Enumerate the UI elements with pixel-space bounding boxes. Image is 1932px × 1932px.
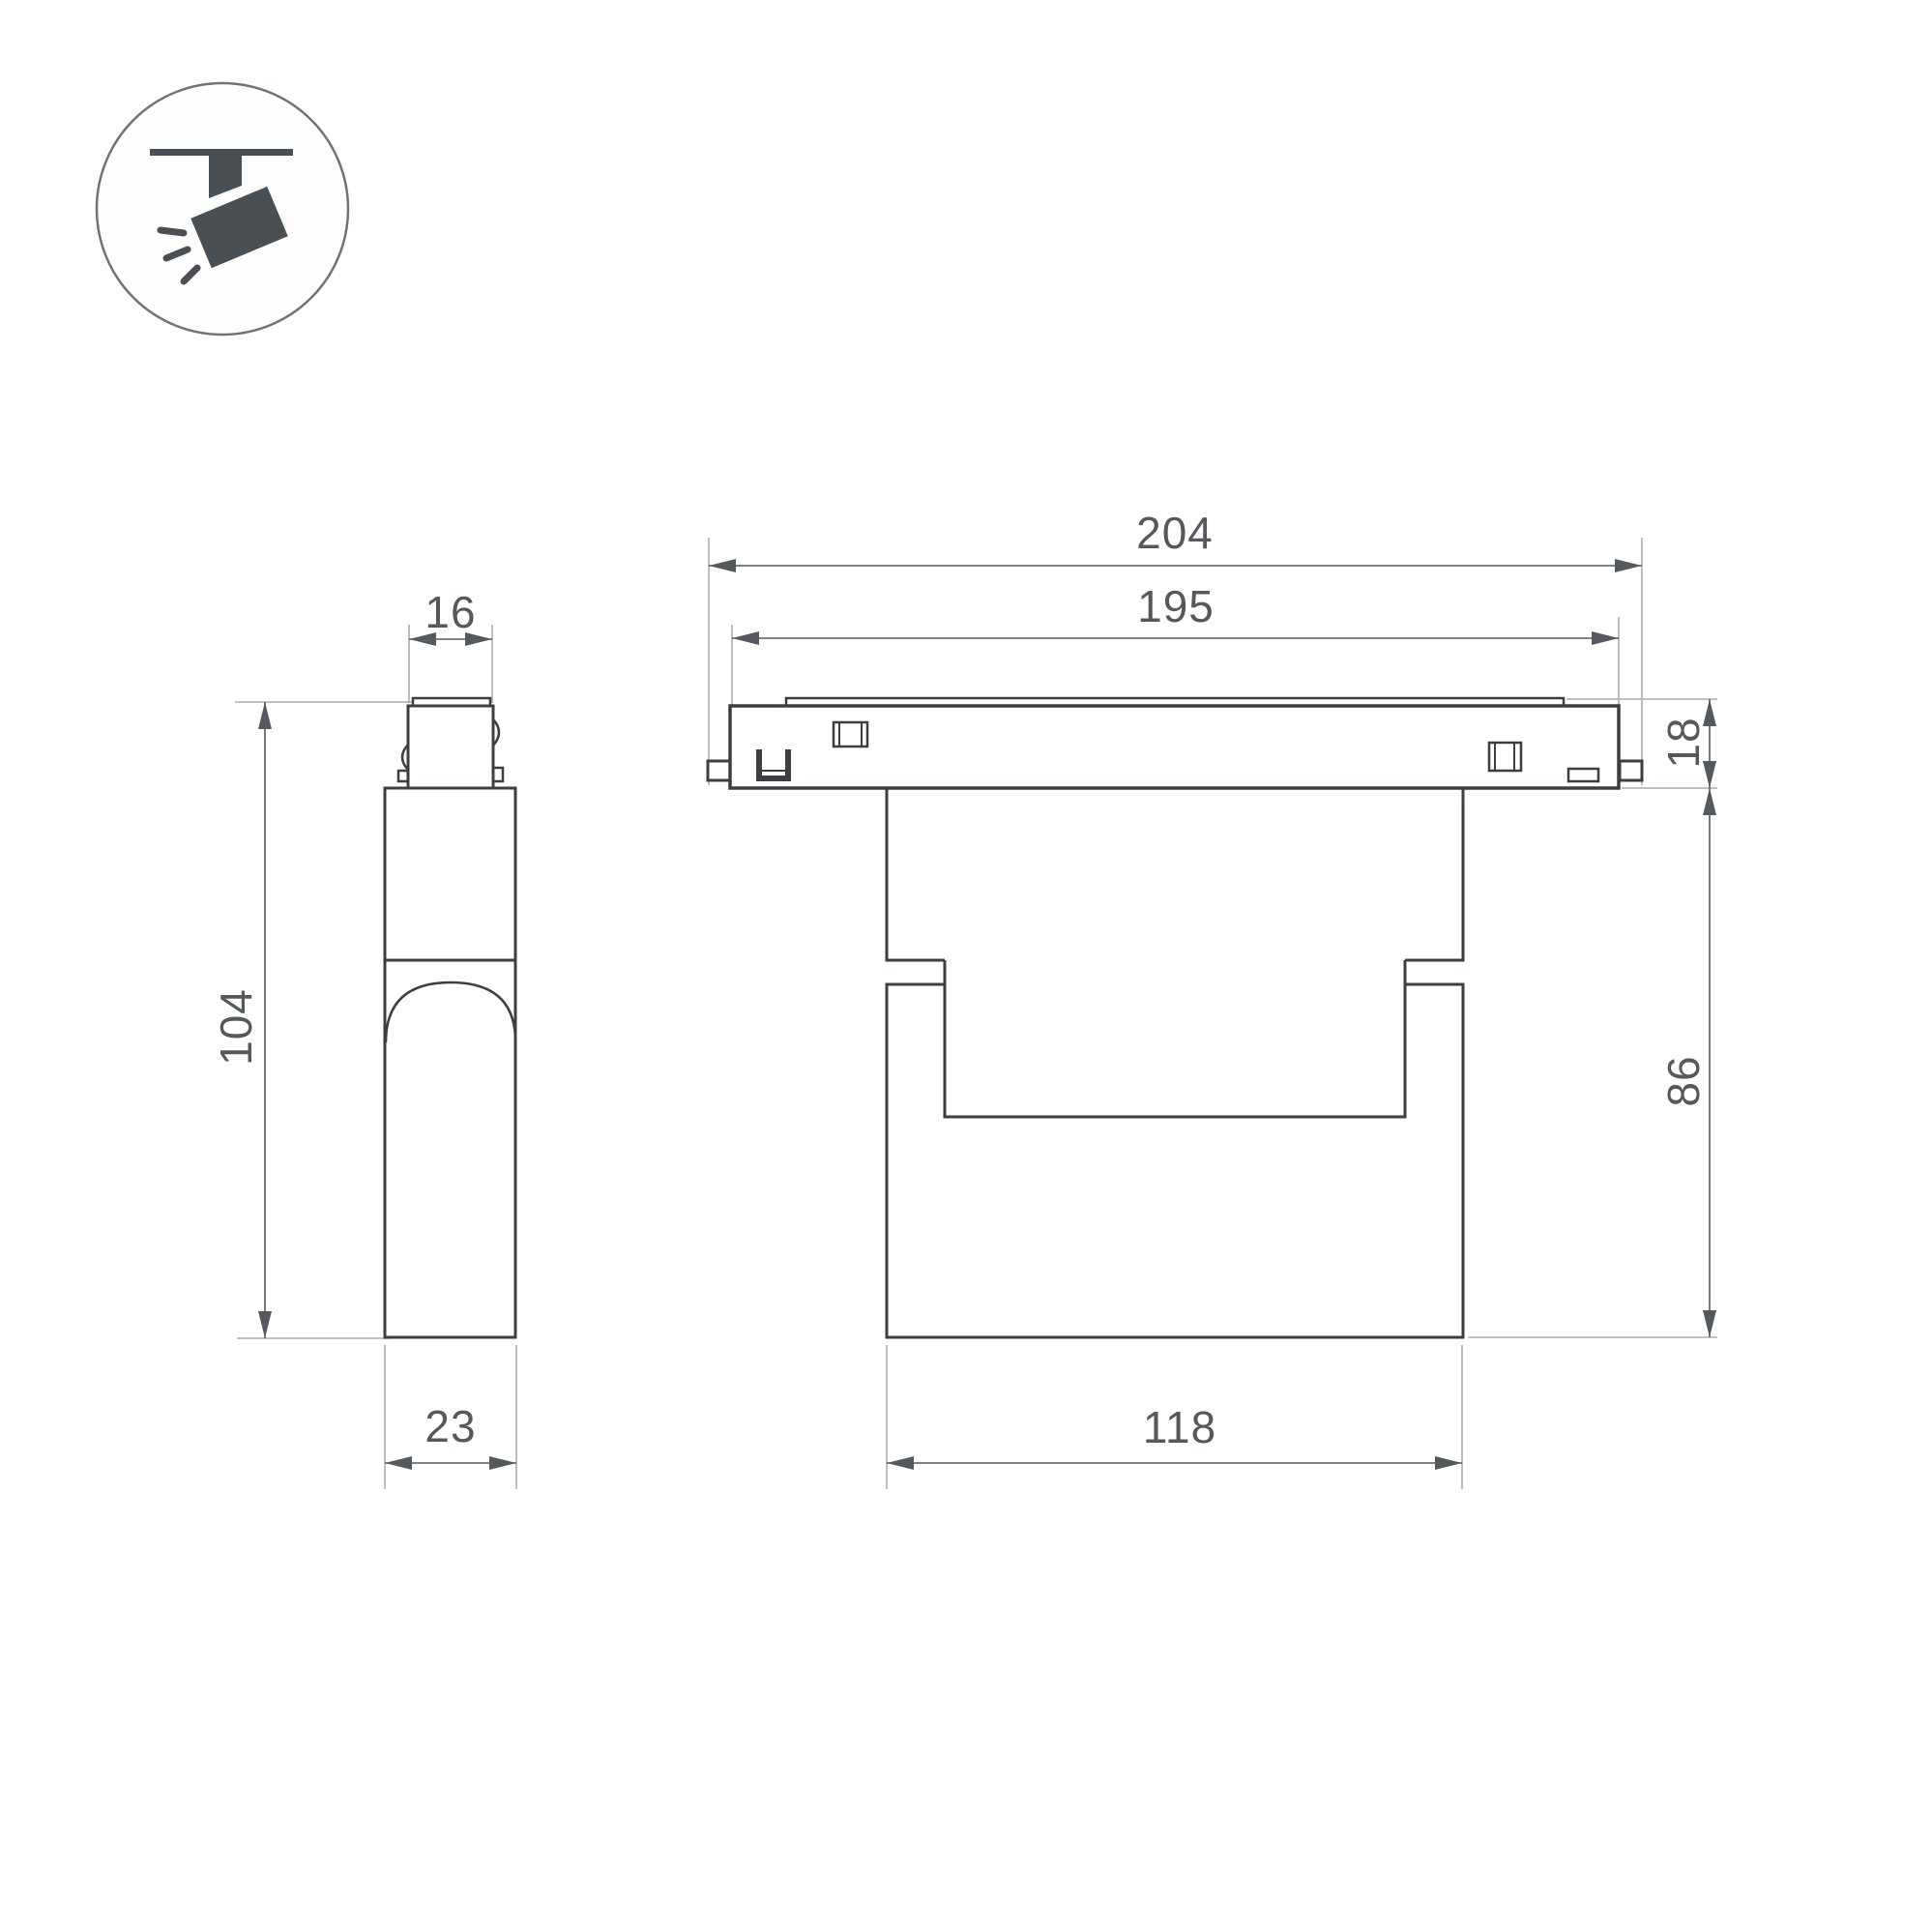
icon-light-ray-1: [161, 230, 184, 233]
dim-204-arrow-left: [709, 559, 736, 572]
dim-18-label: 18: [1658, 717, 1709, 768]
dim-23-label: 23: [424, 1401, 476, 1451]
front-body-recessed-tray: [945, 960, 1405, 1117]
icon-ceiling-track: [150, 149, 293, 156]
side-body-outline: [385, 788, 515, 1337]
dim-104-arrow-bottom: [258, 1311, 272, 1338]
extension-lines: [235, 538, 1717, 1489]
front-adapter-tab-right: [1620, 761, 1642, 780]
dim-18: 18: [1658, 699, 1716, 788]
dim-118-arrow-right: [1435, 1456, 1462, 1470]
dim-104-arrow-top: [258, 702, 272, 729]
dim-195-arrow-right: [1592, 631, 1619, 645]
dim-23: 23: [385, 1401, 516, 1470]
dim-86-label: 86: [1658, 1055, 1709, 1106]
dim-204-label: 204: [1136, 508, 1214, 558]
front-view: [708, 698, 1642, 1337]
track-spotlight-icon: [97, 83, 348, 335]
dim-16: 16: [409, 587, 492, 646]
side-body-dome-arc: [386, 982, 515, 1042]
dim-23-arrow-left: [385, 1456, 412, 1470]
technical-drawing: 204 195 18 86 118 16 104: [0, 0, 1932, 1932]
dim-195: 195: [732, 581, 1619, 645]
front-slot: [1568, 769, 1598, 781]
dim-118: 118: [887, 1402, 1462, 1470]
dim-195-arrow-left: [732, 631, 759, 645]
dim-118-label: 118: [1143, 1402, 1216, 1452]
side-view: [385, 698, 515, 1337]
dim-16-label: 16: [424, 587, 476, 637]
dim-86-arrow-bottom: [1703, 1310, 1716, 1337]
dim-204: 204: [709, 508, 1642, 572]
side-connector-stem: [408, 706, 493, 788]
dim-195-label: 195: [1137, 581, 1215, 631]
front-adapter-tab-left: [708, 761, 730, 780]
front-u-clip: [759, 749, 788, 778]
dim-104: 104: [211, 702, 272, 1338]
dim-104-label: 104: [211, 988, 261, 1066]
dim-86-arrow-top: [1703, 788, 1716, 815]
dim-23-arrow-right: [489, 1456, 516, 1470]
dim-86: 86: [1658, 788, 1716, 1337]
dim-118-arrow-left: [887, 1456, 914, 1470]
front-window-right: [1489, 743, 1521, 771]
technical-drawing-page: 204 195 18 86 118 16 104: [0, 0, 1932, 1932]
front-body-outline: [887, 788, 1463, 1337]
dim-204-arrow-right: [1615, 559, 1642, 572]
